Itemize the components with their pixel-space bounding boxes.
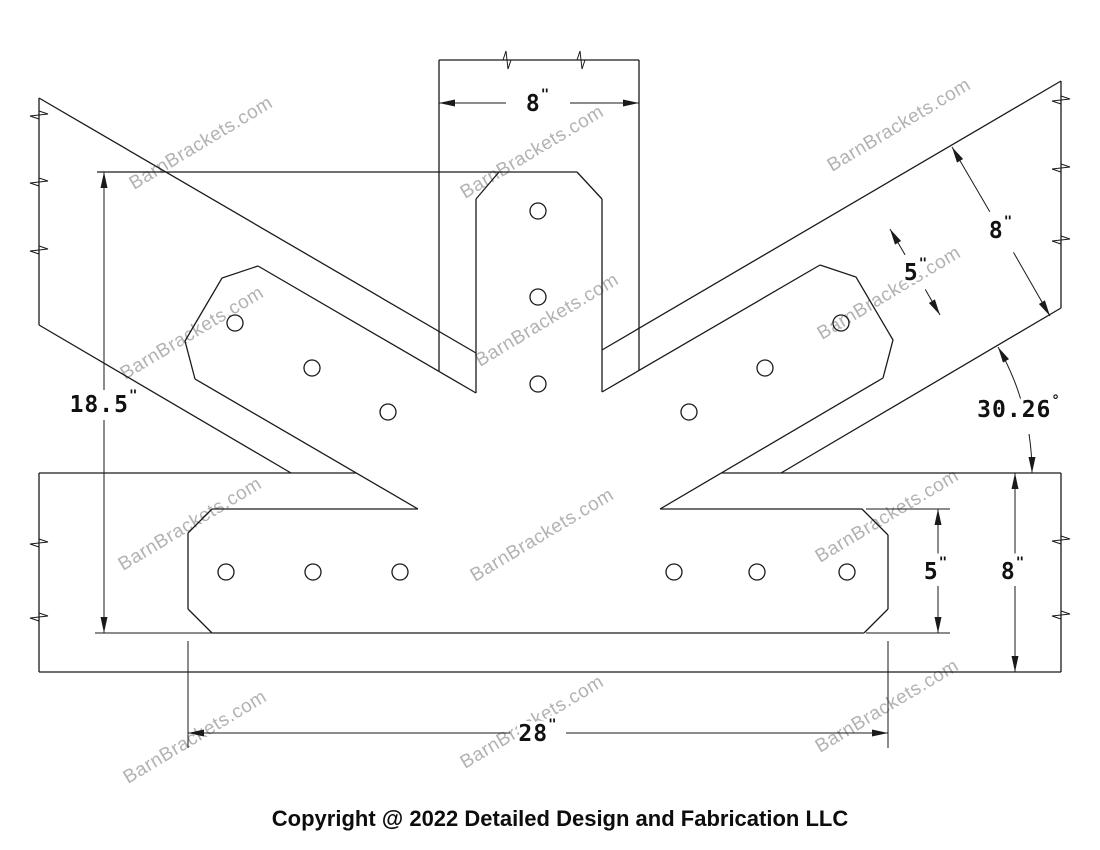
dim-arrow bbox=[439, 100, 455, 107]
bolt-hole bbox=[681, 404, 697, 420]
dim-arrow bbox=[929, 299, 940, 315]
watermark-text: BarnBrackets.com bbox=[812, 655, 963, 757]
dim-arrow bbox=[1039, 300, 1050, 316]
watermark-text: BarnBrackets.com bbox=[812, 465, 963, 567]
dim-arrow bbox=[890, 229, 901, 245]
break-symbol bbox=[30, 168, 48, 196]
dim-arrow bbox=[935, 509, 942, 525]
bolt-hole bbox=[380, 404, 396, 420]
dim-label-chord-depth: 8" bbox=[1001, 555, 1025, 585]
watermark-text: BarnBrackets.com bbox=[467, 484, 618, 586]
break-symbol bbox=[493, 51, 521, 69]
bolt-hole bbox=[392, 564, 408, 580]
dim-strut-depth: 8" bbox=[952, 147, 1050, 316]
dim-arrow bbox=[935, 617, 942, 633]
bolt-hole bbox=[305, 564, 321, 580]
dim-arrow bbox=[872, 730, 888, 737]
dim-label-bracket-height: 18.5" bbox=[70, 388, 139, 418]
watermark-text: BarnBrackets.com bbox=[824, 74, 975, 176]
dim-arrow bbox=[1012, 656, 1019, 672]
copyright-text: Copyright @ 2022 Detailed Design and Fab… bbox=[272, 806, 849, 831]
bolt-hole bbox=[530, 376, 546, 392]
bolt-hole bbox=[530, 289, 546, 305]
bolt-hole bbox=[757, 360, 773, 376]
break-symbol bbox=[30, 101, 48, 129]
break-symbol bbox=[1052, 86, 1070, 114]
dim-label-bracket-length: 28" bbox=[518, 717, 557, 747]
drawing-page: BarnBrackets.com BarnBrackets.com BarnBr… bbox=[0, 0, 1100, 850]
dim-label-strut-depth: 8" bbox=[989, 214, 1013, 244]
dim-arrow bbox=[623, 100, 639, 107]
watermark-text: BarnBrackets.com bbox=[126, 92, 277, 194]
break-symbol bbox=[1052, 601, 1070, 629]
watermark-text: BarnBrackets.com bbox=[120, 686, 271, 788]
break-symbol bbox=[1052, 154, 1070, 182]
dim-arrow bbox=[998, 347, 1009, 363]
bolt-holes bbox=[218, 203, 855, 580]
break-symbol bbox=[567, 51, 595, 69]
bolt-hole bbox=[666, 564, 682, 580]
dim-strut-angle: 30.26° bbox=[977, 347, 1061, 473]
bolt-hole bbox=[218, 564, 234, 580]
dim-arrow bbox=[1012, 473, 1019, 489]
dim-arrow bbox=[1029, 457, 1036, 473]
dimension-layer: 8" 8" 5" 30.26° 18.5" bbox=[70, 87, 1061, 748]
break-symbol bbox=[1052, 526, 1070, 554]
bolt-hole bbox=[304, 360, 320, 376]
dim-chord-depth: 8" bbox=[1001, 473, 1025, 672]
dim-post-width: 8" bbox=[439, 87, 639, 117]
watermark-layer: BarnBrackets.com BarnBrackets.com BarnBr… bbox=[115, 74, 975, 788]
dim-label-post-width: 8" bbox=[526, 87, 550, 117]
watermark-text: BarnBrackets.com bbox=[115, 473, 266, 575]
break-symbol bbox=[1052, 226, 1070, 254]
bracket-drawing-canvas: BarnBrackets.com BarnBrackets.com BarnBr… bbox=[0, 0, 1100, 850]
break-symbol bbox=[30, 529, 48, 557]
dim-label-strut-angle: 30.26° bbox=[977, 393, 1061, 423]
dim-arrow bbox=[101, 617, 108, 633]
plate-center-strip bbox=[97, 172, 602, 393]
dim-arrow bbox=[101, 172, 108, 188]
dim-label-band-plate-height: 5" bbox=[924, 555, 948, 585]
watermark-text: BarnBrackets.com bbox=[472, 269, 623, 371]
break-symbol bbox=[30, 236, 48, 264]
break-symbol bbox=[30, 603, 48, 631]
bolt-hole bbox=[749, 564, 765, 580]
dim-bracket-length: 28" bbox=[188, 641, 888, 748]
bolt-hole bbox=[530, 203, 546, 219]
dim-arrow bbox=[952, 147, 963, 163]
bolt-hole bbox=[839, 564, 855, 580]
